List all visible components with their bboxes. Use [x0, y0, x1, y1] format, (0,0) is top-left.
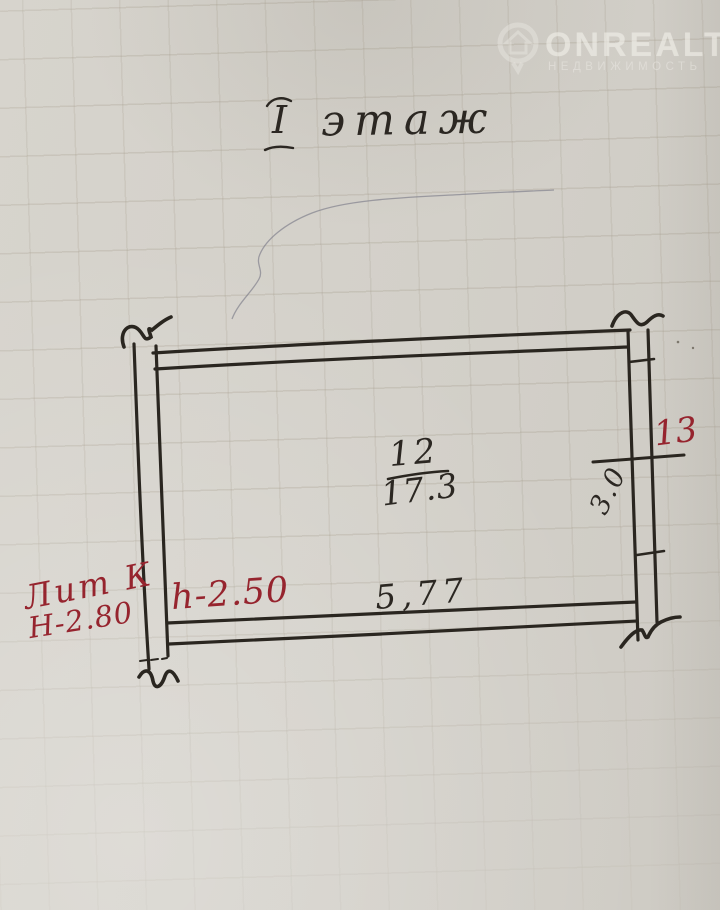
wall-left-inner — [156, 346, 168, 656]
room-area: 17.3 — [379, 468, 460, 510]
floor-word: этаж — [321, 97, 497, 143]
ink-specks — [677, 341, 695, 349]
break-mark-top-right — [612, 312, 663, 326]
break-mark-top-left — [122, 317, 171, 347]
wall-left-outer — [134, 344, 149, 669]
width-dimension: 5,77 — [374, 573, 470, 614]
wall-right-outer — [648, 330, 657, 622]
partition-line-room-13 — [593, 455, 684, 462]
ceiling-height-note: h-2.50 — [170, 573, 290, 616]
wall-bottom-outer — [169, 621, 637, 644]
room-number: 12 — [388, 434, 440, 472]
numeral-underline — [265, 147, 293, 150]
dashes-left-bottom — [140, 658, 167, 661]
tick-right-mid — [637, 551, 664, 555]
floorplan-photo: ONREALT НЕДВИЖИМОСТЬ — [0, 0, 720, 910]
break-mark-bottom-left — [139, 671, 178, 687]
wall-right-inner — [628, 331, 638, 640]
floor-numeral: I — [272, 101, 287, 139]
stray-pen-scribble — [232, 190, 554, 319]
adjacent-room-number: 13 — [652, 412, 699, 451]
